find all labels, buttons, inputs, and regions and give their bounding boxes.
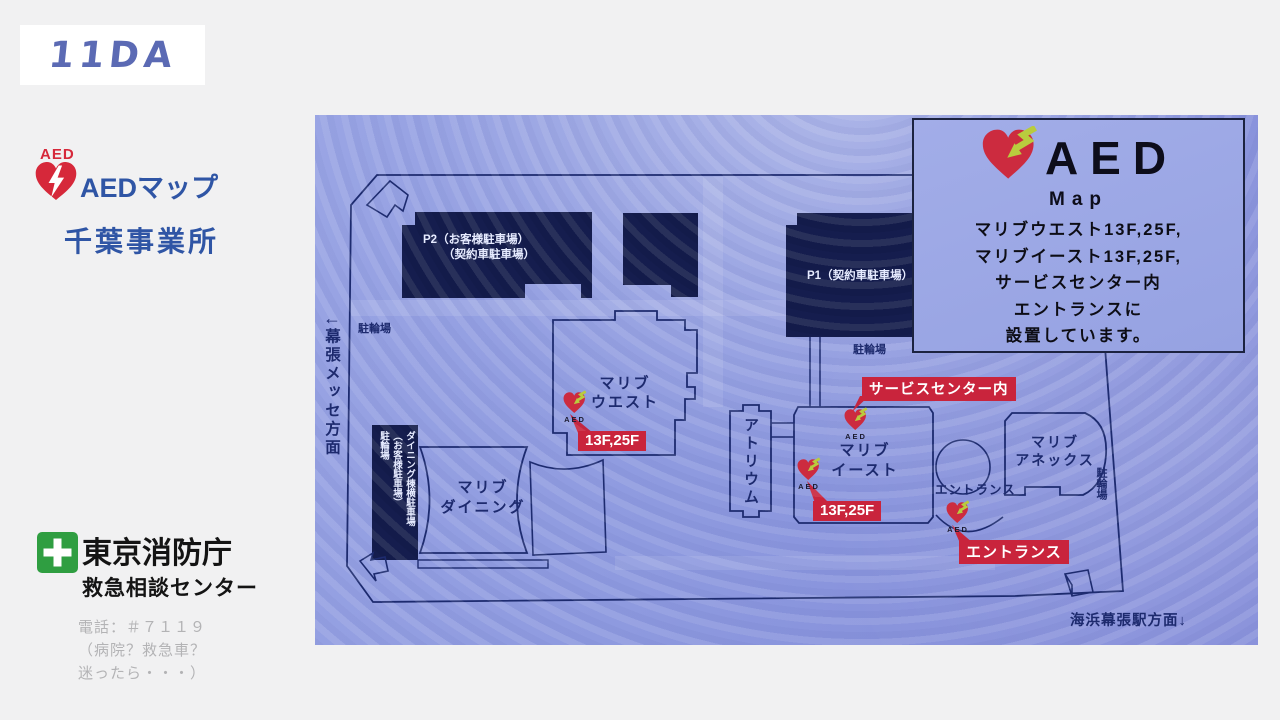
- legend-header: AED: [914, 126, 1243, 189]
- marib-annex-label-2: アネックス: [1011, 450, 1099, 470]
- p2-label-line2: （契約車駐車場）: [443, 246, 535, 262]
- p2-label-line1: P2（お客様駐車場）: [423, 231, 529, 247]
- marib-dining-label-1: マリブ: [448, 476, 518, 497]
- west-floors-badge: 13F,25F: [578, 431, 646, 451]
- service-center-badge: サービスセンター内: [862, 377, 1016, 401]
- phone-line-2: （病院？救急車？: [78, 639, 206, 662]
- aed-caption-east: AED: [796, 482, 822, 491]
- aed-caption-west: AED: [562, 415, 588, 424]
- legend-heart-icon: [979, 126, 1041, 189]
- legend-line-5: 設置しています。: [914, 323, 1243, 350]
- p1-label: P1（契約車駐車場）: [807, 267, 913, 283]
- east-floors-badge: 13F,25F: [813, 501, 881, 521]
- dining-parking-label: ダイニング棟横駐車場 （お客様駐車場） 駐輪場: [377, 431, 416, 557]
- bike-parking-p1: 駐輪場: [853, 341, 886, 357]
- small-dark-building: [623, 213, 698, 297]
- legend-line-3: サービスセンター内: [914, 270, 1243, 297]
- aed-caption-service: AED: [843, 432, 869, 441]
- green-cross-icon: [37, 532, 78, 578]
- road-lines: [810, 337, 820, 407]
- marib-west-label-1: マリブ: [590, 372, 660, 393]
- aed-caption-entrance: AED: [945, 525, 971, 534]
- aed-heart-icon: [33, 159, 79, 208]
- phone-line-1: 電話：＃７１１９: [78, 616, 206, 639]
- marib-east-label-2: イースト: [823, 459, 907, 480]
- station-direction-label: 海浜幕張駅方面↓: [1070, 609, 1187, 630]
- aed-site-map: P2（お客様駐車場） （契約車駐車場） P1（契約車駐車場） ダイニング棟横駐車…: [315, 115, 1258, 645]
- marib-annex-label-1: マリブ: [1020, 432, 1090, 452]
- phone-line-3: 迷ったら・・・）: [78, 662, 206, 685]
- entrance-text-label: エントランス: [935, 479, 1016, 498]
- legend-line-2: マリブイースト13F,25F,: [914, 244, 1243, 271]
- dining-parking-line3: 駐輪場: [378, 431, 389, 460]
- emergency-phone-info: 電話：＃７１１９ （病院？救急車？ 迷ったら・・・）: [78, 616, 206, 685]
- west-lower-annex-outline: [530, 460, 606, 555]
- makuhari-direction-label: 幕張メッセ方面: [320, 328, 342, 460]
- dining-south-structure: [418, 560, 548, 568]
- page-title: AEDマップ: [80, 166, 218, 205]
- small-structure-outline: [367, 181, 408, 217]
- aed-map-legend: AED Map マリブウエスト13F,25F, マリブイースト13F,25F, …: [912, 118, 1245, 353]
- slide: { "logo": { "text": "11DA" }, "header": …: [0, 0, 1280, 720]
- marib-west-label-2: ウエスト: [581, 391, 669, 412]
- fire-dept-name: 東京消防庁: [82, 528, 232, 572]
- logo-text: 11DA: [46, 35, 178, 76]
- bike-parking-nw: 駐輪場: [358, 320, 391, 336]
- atrium-corridor: [771, 423, 794, 437]
- legend-map-word: Map: [914, 189, 1243, 211]
- marib-east-label-1: マリブ: [830, 439, 900, 460]
- legend-line-1: マリブウエスト13F,25F,: [914, 217, 1243, 244]
- atrium-label: アトリウム: [740, 417, 761, 513]
- fire-dept-subtitle: 救急相談センター: [82, 572, 258, 602]
- site-name: 千葉事業所: [64, 220, 219, 260]
- legend-line-4: エントランスに: [914, 297, 1243, 324]
- legend-aed-title: AED: [1045, 131, 1178, 185]
- bike-parking-east: 駐輪場: [1093, 467, 1109, 515]
- legend-description: マリブウエスト13F,25F, マリブイースト13F,25F, サービスセンター…: [914, 217, 1243, 350]
- company-logo: 11DA: [20, 25, 205, 85]
- dining-parking-line1: ダイニング棟横駐車場: [404, 431, 415, 526]
- marib-dining-label-2: ダイニング: [436, 496, 530, 517]
- entrance-badge: エントランス: [959, 540, 1069, 564]
- makuhari-arrow: ←: [323, 308, 341, 329]
- dining-parking-line2: （お客様駐車場）: [391, 431, 402, 507]
- southeast-structure: [1065, 570, 1093, 596]
